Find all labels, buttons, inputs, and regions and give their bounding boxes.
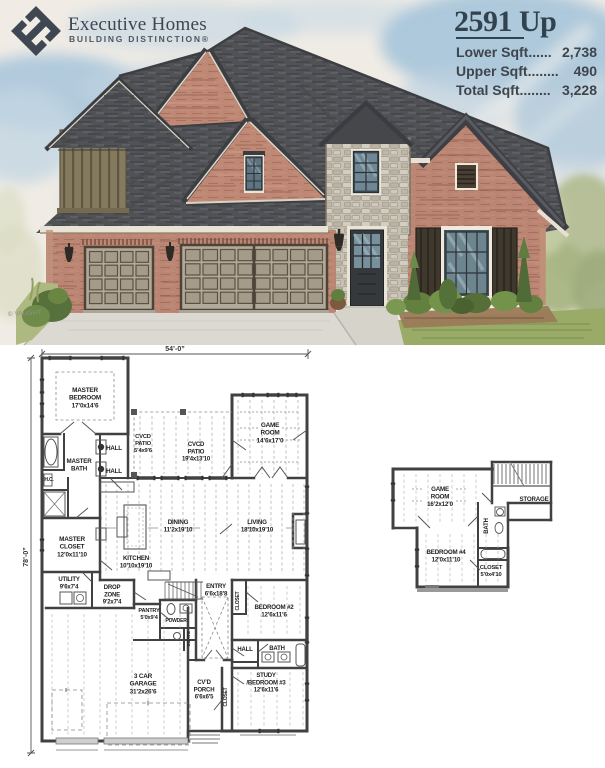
svg-text:HALL: HALL <box>106 468 122 475</box>
svg-text:5’0x9’4: 5’0x9’4 <box>140 615 158 621</box>
svg-text:12’6x11’6: 12’6x11’6 <box>261 612 287 619</box>
svg-text:PANTRY: PANTRY <box>138 608 160 614</box>
svg-text:MASTER: MASTER <box>72 387 98 394</box>
svg-text:KITCHEN: KITCHEN <box>123 555 150 562</box>
svg-text:PATIO: PATIO <box>135 441 152 447</box>
svg-text:CLOSET: CLOSET <box>235 591 241 610</box>
svg-text:BATH: BATH <box>71 466 88 473</box>
svg-text:BEDROOM: BEDROOM <box>69 395 101 402</box>
svg-text:11’2x19’10: 11’2x19’10 <box>164 527 193 534</box>
svg-text:GAME: GAME <box>261 422 280 429</box>
svg-text:5’0x4’10: 5’0x4’10 <box>481 572 502 578</box>
svg-text:BEDROOM #2: BEDROOM #2 <box>255 604 295 611</box>
svg-text:BATH: BATH <box>269 646 284 652</box>
svg-text:31’2x26’6: 31’2x26’6 <box>130 688 157 695</box>
svg-text:12’0x11’10: 12’0x11’10 <box>57 551 87 558</box>
svg-text:19’4x13’10: 19’4x13’10 <box>182 457 211 463</box>
svg-text:5’4x9’6: 5’4x9’6 <box>134 448 153 454</box>
svg-text:CLOSET: CLOSET <box>223 687 229 706</box>
svg-text:54’-0”: 54’-0” <box>165 346 184 353</box>
svg-text:6’6x6’5: 6’6x6’5 <box>195 695 214 701</box>
svg-text:CV’D: CV’D <box>197 680 211 686</box>
svg-text:BEDROOM #4: BEDROOM #4 <box>427 549 467 556</box>
svg-text:10’10x19’10: 10’10x19’10 <box>120 563 153 570</box>
svg-text:ENTRY: ENTRY <box>206 583 227 590</box>
svg-text:3 CAR: 3 CAR <box>134 673 153 680</box>
svg-text:UTILITY: UTILITY <box>58 577 79 583</box>
svg-text:CVCD: CVCD <box>188 442 205 448</box>
svg-text:DINING: DINING <box>168 519 189 526</box>
svg-text:GARAGE: GARAGE <box>130 681 158 688</box>
svg-text:CVCD: CVCD <box>135 434 151 440</box>
svg-text:POWDER: POWDER <box>165 618 187 624</box>
svg-text:6’6x18’8: 6’6x18’8 <box>205 591 228 598</box>
svg-text:18’10x19’10: 18’10x19’10 <box>241 527 274 534</box>
svg-text:ZONE: ZONE <box>104 592 120 598</box>
svg-text:ROOM: ROOM <box>260 430 279 437</box>
svg-text:COATS: COATS <box>186 630 192 646</box>
svg-text:MASTER: MASTER <box>59 536 85 543</box>
svg-text:CLOSET: CLOSET <box>480 565 503 571</box>
svg-text:9’6x7’4: 9’6x7’4 <box>60 584 79 590</box>
svg-text:BATH: BATH <box>484 518 490 533</box>
svg-text:STORAGE: STORAGE <box>519 496 548 503</box>
svg-text:12’6x11’6: 12’6x11’6 <box>254 688 279 694</box>
svg-text:LIVING: LIVING <box>247 519 267 526</box>
svg-text:PORCH: PORCH <box>194 687 215 693</box>
svg-text:CLOSET: CLOSET <box>60 544 85 551</box>
svg-text:H.C.: H.C. <box>44 477 54 483</box>
svg-text:78’-0”: 78’-0” <box>23 547 30 566</box>
svg-text:GAME: GAME <box>431 486 449 493</box>
svg-text:STUDY: STUDY <box>256 673 276 679</box>
svg-text:12’0x11’10: 12’0x11’10 <box>432 557 461 564</box>
svg-text:DROP: DROP <box>104 585 121 591</box>
svg-text:14’6x17’0: 14’6x17’0 <box>257 437 284 444</box>
svg-text:9’2x7’4: 9’2x7’4 <box>103 600 122 606</box>
svg-text:16’2x12’0: 16’2x12’0 <box>427 501 453 508</box>
svg-text:ROOM: ROOM <box>431 494 449 501</box>
svg-text:/BEDROOM #3: /BEDROOM #3 <box>246 680 286 686</box>
svg-text:PATIO: PATIO <box>188 449 205 455</box>
svg-text:HALL: HALL <box>106 445 122 452</box>
svg-text:HALL: HALL <box>237 647 253 653</box>
svg-text:17’0x14’6: 17’0x14’6 <box>72 402 99 409</box>
svg-text:MASTER: MASTER <box>67 458 93 465</box>
